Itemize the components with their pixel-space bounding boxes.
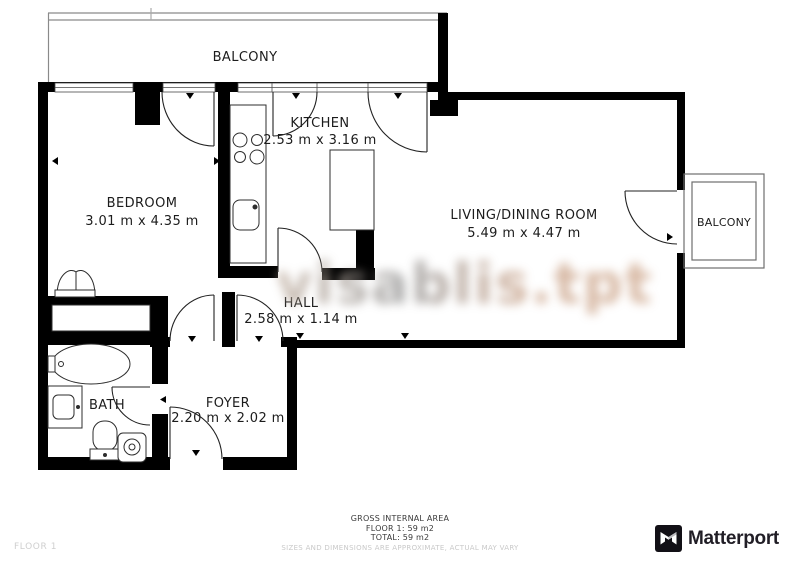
room-dims-foyer: 2.20 m x 2.02 m [171, 411, 284, 426]
room-dims-bedroom: 3.01 m x 4.35 m [85, 214, 198, 229]
closet [52, 305, 150, 331]
gross-internal-area-title: GROSS INTERNAL AREA [0, 514, 800, 524]
matterport-logo: Matterport [655, 525, 779, 552]
matterport-wordmark: Matterport [688, 528, 779, 550]
room-label-bath: BATH [89, 398, 125, 413]
floor-label: FLOOR 1 [14, 542, 57, 552]
matterport-icon [655, 525, 682, 552]
room-label-living: LIVING/DINING ROOM [450, 208, 597, 223]
room-label-foyer: FOYER [206, 396, 250, 411]
walls [38, 13, 685, 470]
windows [55, 83, 427, 92]
room-dims-hall: 2.58 m x 1.14 m [244, 312, 357, 327]
kitchen-hall-door [278, 228, 322, 272]
kitchen-counter [230, 105, 266, 263]
balcony-top-railing [48, 8, 447, 82]
kitchen-balcony-door-2 [368, 92, 427, 152]
room-dims-living: 5.49 m x 4.47 m [467, 226, 580, 241]
room-label-bedroom: BEDROOM [107, 196, 178, 211]
room-label-hall: HALL [284, 296, 319, 311]
floorplan-drawing: BALCONY BEDROOM 3.01 m x 4.35 m KITCHEN … [0, 0, 800, 566]
doors [112, 92, 677, 459]
room-label-balcony-top: BALCONY [213, 50, 278, 65]
washing-machine [118, 433, 146, 462]
room-label-kitchen: KITCHEN [290, 116, 349, 131]
kitchen-sink [233, 200, 259, 230]
bathtub [48, 344, 130, 384]
floorplan-page: BALCONY BEDROOM 3.01 m x 4.35 m KITCHEN … [0, 0, 800, 566]
vanity-sink [48, 386, 82, 428]
toilet [90, 421, 120, 460]
room-dims-kitchen: 2.53 m x 3.16 m [263, 133, 376, 148]
hall-door-left [170, 295, 214, 341]
room-labels: BALCONY BEDROOM 3.01 m x 4.35 m KITCHEN … [85, 50, 751, 426]
tall-cabinet [330, 150, 374, 230]
room-label-balcony-right: BALCONY [697, 216, 751, 229]
bedroom-balcony-door [162, 92, 214, 146]
wardrobe [55, 270, 95, 297]
